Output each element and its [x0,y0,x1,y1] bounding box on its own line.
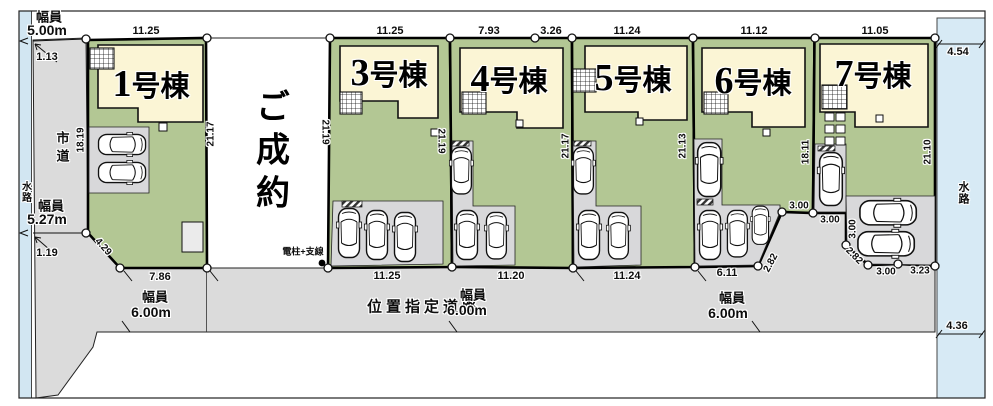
lot-6-notch-dim: 3.00 [789,201,808,212]
electric-pole-dot [319,260,326,267]
driveway-mark [574,141,591,146]
lot-1-name: 1号棟 [112,62,189,106]
waterway-right-strip [937,18,985,398]
driveway-mark [697,199,713,205]
driveway-mark [452,141,469,146]
driveway-mark [342,201,362,207]
lot-5-top-dim: 11.24 [614,25,641,37]
lot-6-number: 6 [714,60,733,102]
lot-1-number: 1 [112,63,131,105]
lot-1-top-dim: 11.25 [133,25,160,37]
lot-2-right-dim: 21.19 [320,119,331,144]
lot-5-suffix: 号棟 [613,65,671,97]
width-south3: 6.00m [708,305,748,321]
frontage-west-dim: 7.86 [149,271,170,283]
driveway-mark [818,146,835,151]
car-icon [695,143,723,197]
lot-1-suffix: 号棟 [131,71,189,103]
car-icon [817,153,844,206]
balcony-hatch [573,69,596,92]
lot-4-number: 4 [470,58,489,100]
lot-5-number: 5 [594,57,613,99]
setback-south: 1.19 [36,247,57,259]
car-icon [725,210,749,257]
site-plan: 幅員 5.00m 1.13 市道 水路 幅員 5.27m 1.19 4.29 7… [0,0,993,406]
car-icon [571,147,595,194]
car-icon [751,206,771,244]
lot-6-right-dim: 18.11 [801,140,812,164]
width-north: 5.00m [27,22,67,38]
car-icon [99,160,146,184]
width-south2: 6.00m [447,302,487,318]
lot-4-right-dim: 21.17 [561,133,572,158]
lot-5-name: 5号棟 [594,56,671,100]
car-icon [606,212,630,259]
width-label-south1: 幅員 [142,287,168,306]
waterway-left-strip [19,11,32,398]
waterway-left-label: 水路 [18,181,33,203]
lot-4-name: 4号棟 [470,57,547,101]
waterway-north-dim: 4.54 [947,46,968,58]
lot-5-right-dim: 21.13 [678,133,689,158]
car-icon [484,212,508,259]
car-icon [336,209,361,258]
lot-1-right-dim: 21.17 [206,121,217,146]
lot-4-top-left-dim: 7.93 [478,25,499,37]
lot-5-bottom-dim: 11.24 [614,270,641,282]
lot-3-name: 3号棟 [350,51,427,95]
car-icon [697,211,722,260]
lot-7-bottom-right-dim: 3.23 [910,266,929,277]
width-label-south3: 幅員 [719,288,745,307]
lot-7-entry-side-dim: 3.00 [848,219,859,238]
width-south1: 6.00m [131,304,171,320]
lot-7-number: 7 [834,53,853,95]
car-icon [576,211,601,260]
lot-3-suffix: 号棟 [369,60,427,92]
car-icon [858,229,914,258]
car-icon [99,132,146,156]
car-icon [392,213,417,262]
setback-north: 1.13 [36,51,57,63]
lot-6-suffix: 号棟 [733,68,791,100]
storage-shed [182,222,203,252]
lot-6-bottom-dim: 6.11 [717,267,738,279]
lot-3-top-dim: 11.25 [377,25,404,37]
city-road-label: 市道 [53,131,72,167]
lot-1-left-dim: 18.19 [76,127,87,152]
width-label-south2: 幅員 [460,285,486,304]
waterway-south-dim: 4.36 [946,320,967,332]
lot-4-suffix: 号棟 [489,66,547,98]
car-icon [454,211,479,260]
lot-3-number: 3 [350,52,369,94]
lot-3-right-dim: 21.19 [436,128,447,153]
lot-7-right-dim: 21.10 [923,139,934,164]
lot-6-name: 6号棟 [714,59,791,103]
lot-7-name: 7号棟 [834,52,911,96]
electric-pole-label: 電柱+支線 [282,245,323,258]
car-icon [860,198,916,227]
lot-7-suffix: 号棟 [853,61,911,93]
lot-4-bottom-dim: 11.20 [498,270,525,282]
lot-4-top-right-dim: 3.26 [540,25,561,37]
balcony-hatch [340,92,362,114]
width-mid: 5.27m [27,211,67,227]
balcony-hatch [90,48,114,69]
lot-7-entry-top-dim: 3.00 [820,215,839,226]
lot-6-top-dim: 11.12 [741,25,768,37]
car-icon [364,211,389,260]
lot-2-status: ご成約 [245,89,294,218]
lot-7-bottom-left-dim: 3.00 [876,267,895,278]
lot-3-bottom-dim: 11.25 [374,270,401,282]
car-icon [449,147,473,194]
lot-7-top-dim: 11.05 [862,25,889,37]
waterway-right-label: 水路 [955,181,971,205]
